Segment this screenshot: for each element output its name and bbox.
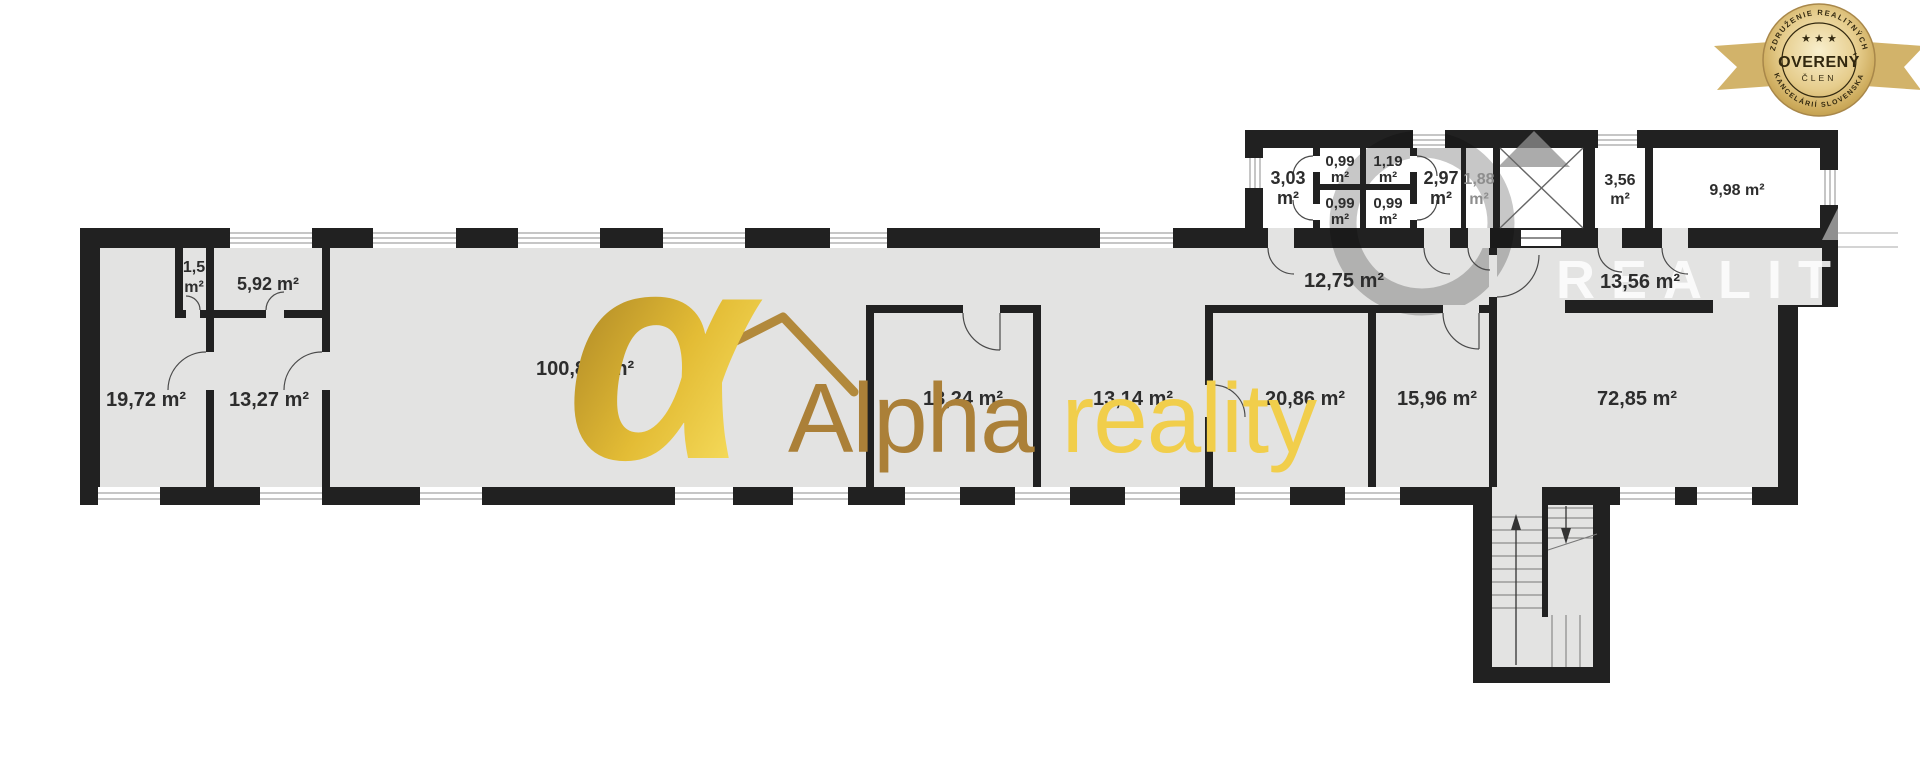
room-label-2-97: 2,97 <box>1423 168 1458 188</box>
wall <box>1368 313 1376 487</box>
room-label-13-56: 13,56 m² <box>1600 271 1680 293</box>
room-label-1-88: 1,88 <box>1463 171 1494 188</box>
wall-partial <box>1565 300 1713 313</box>
wall <box>1645 148 1653 228</box>
room-label-0-99-tl: 0,99 <box>1325 153 1354 170</box>
room-label-0-99-br-unit: m² <box>1379 211 1397 228</box>
floorplan-canvas: REALIT <box>0 0 1920 761</box>
wall <box>1360 148 1366 228</box>
window-strip-left <box>1245 158 1263 188</box>
room-label-12-75: 12,75 m² <box>1304 270 1384 292</box>
badge-title: OVERENÝ <box>1778 52 1860 71</box>
wall <box>1493 148 1500 228</box>
badge-subtitle: ČLEN <box>1802 73 1837 83</box>
room-label-0-99-bl-unit: m² <box>1331 211 1349 228</box>
room-label-13-27: 13,27 m² <box>229 389 309 411</box>
badge-stars: ★ ★ ★ <box>1801 33 1837 45</box>
stair-divider-wall <box>1542 505 1548 617</box>
logo-word-alpha: Alpha <box>788 363 1035 473</box>
wall <box>1033 305 1041 487</box>
room-label-0-99-tl-unit: m² <box>1331 169 1349 186</box>
room-label-3-03: 3,03 <box>1270 168 1305 188</box>
room-label-3-56-unit: m² <box>1610 191 1630 208</box>
room-label-1-19: 1,19 <box>1373 153 1402 170</box>
room-label-3-56: 3,56 <box>1604 172 1635 189</box>
room-label-0-99-bl: 0,99 <box>1325 195 1354 212</box>
area-stair-opening <box>1492 487 1542 509</box>
room-label-2-97-unit: m² <box>1430 188 1452 208</box>
room-label-15-96: 15,96 m² <box>1397 388 1477 410</box>
wall <box>1583 148 1595 228</box>
wall <box>866 305 1041 313</box>
room-label-72-85: 72,85 m² <box>1597 388 1677 410</box>
room-label-3-03-unit: m² <box>1277 188 1299 208</box>
room-label-9-98: 9,98 m² <box>1709 182 1764 199</box>
wall <box>1461 148 1466 228</box>
room-label-1-5-unit: m² <box>184 279 204 296</box>
logo-word-reality: reality <box>1062 363 1317 473</box>
room-label-0-99-br: 0,99 <box>1373 195 1402 212</box>
room-label-1-19-unit: m² <box>1379 169 1397 186</box>
room-label-5-92: 5,92 m² <box>237 274 299 294</box>
room-label-19-72: 19,72 m² <box>106 389 186 411</box>
room-label-1-5: 1,5 <box>183 259 205 276</box>
floorplan-page: REALIT <box>0 0 1920 761</box>
wall <box>175 248 183 310</box>
alpha-glyph-icon: α <box>566 186 763 522</box>
room-label-1-88-unit: m² <box>1469 191 1489 208</box>
